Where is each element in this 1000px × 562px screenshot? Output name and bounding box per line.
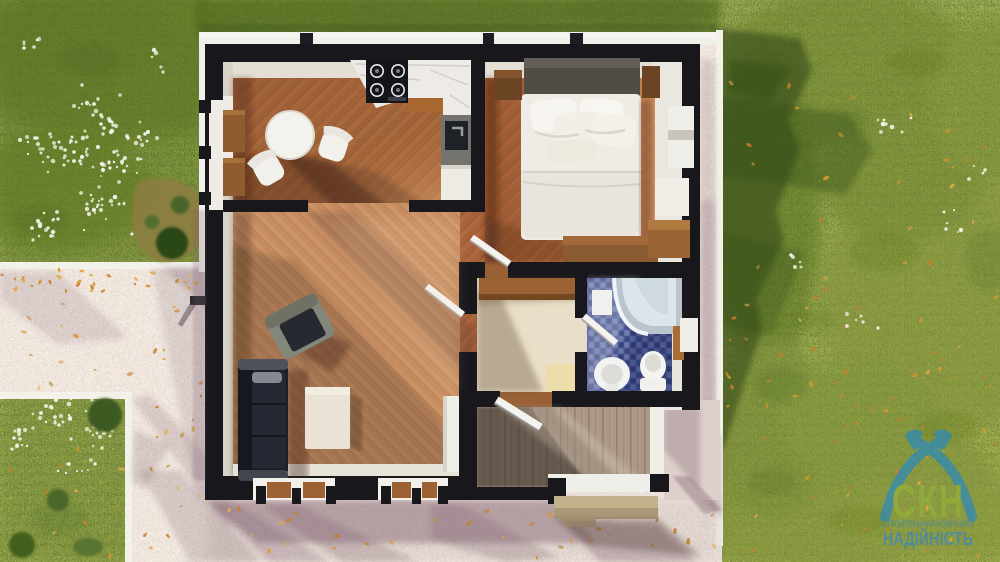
svg-text:СТРОИТЕЛЬНАЯ КОМПАНИЯ: СТРОИТЕЛЬНАЯ КОМПАНИЯ xyxy=(882,519,974,529)
svg-text:НАДІЙНІСТЬ: НАДІЙНІСТЬ xyxy=(883,528,973,549)
